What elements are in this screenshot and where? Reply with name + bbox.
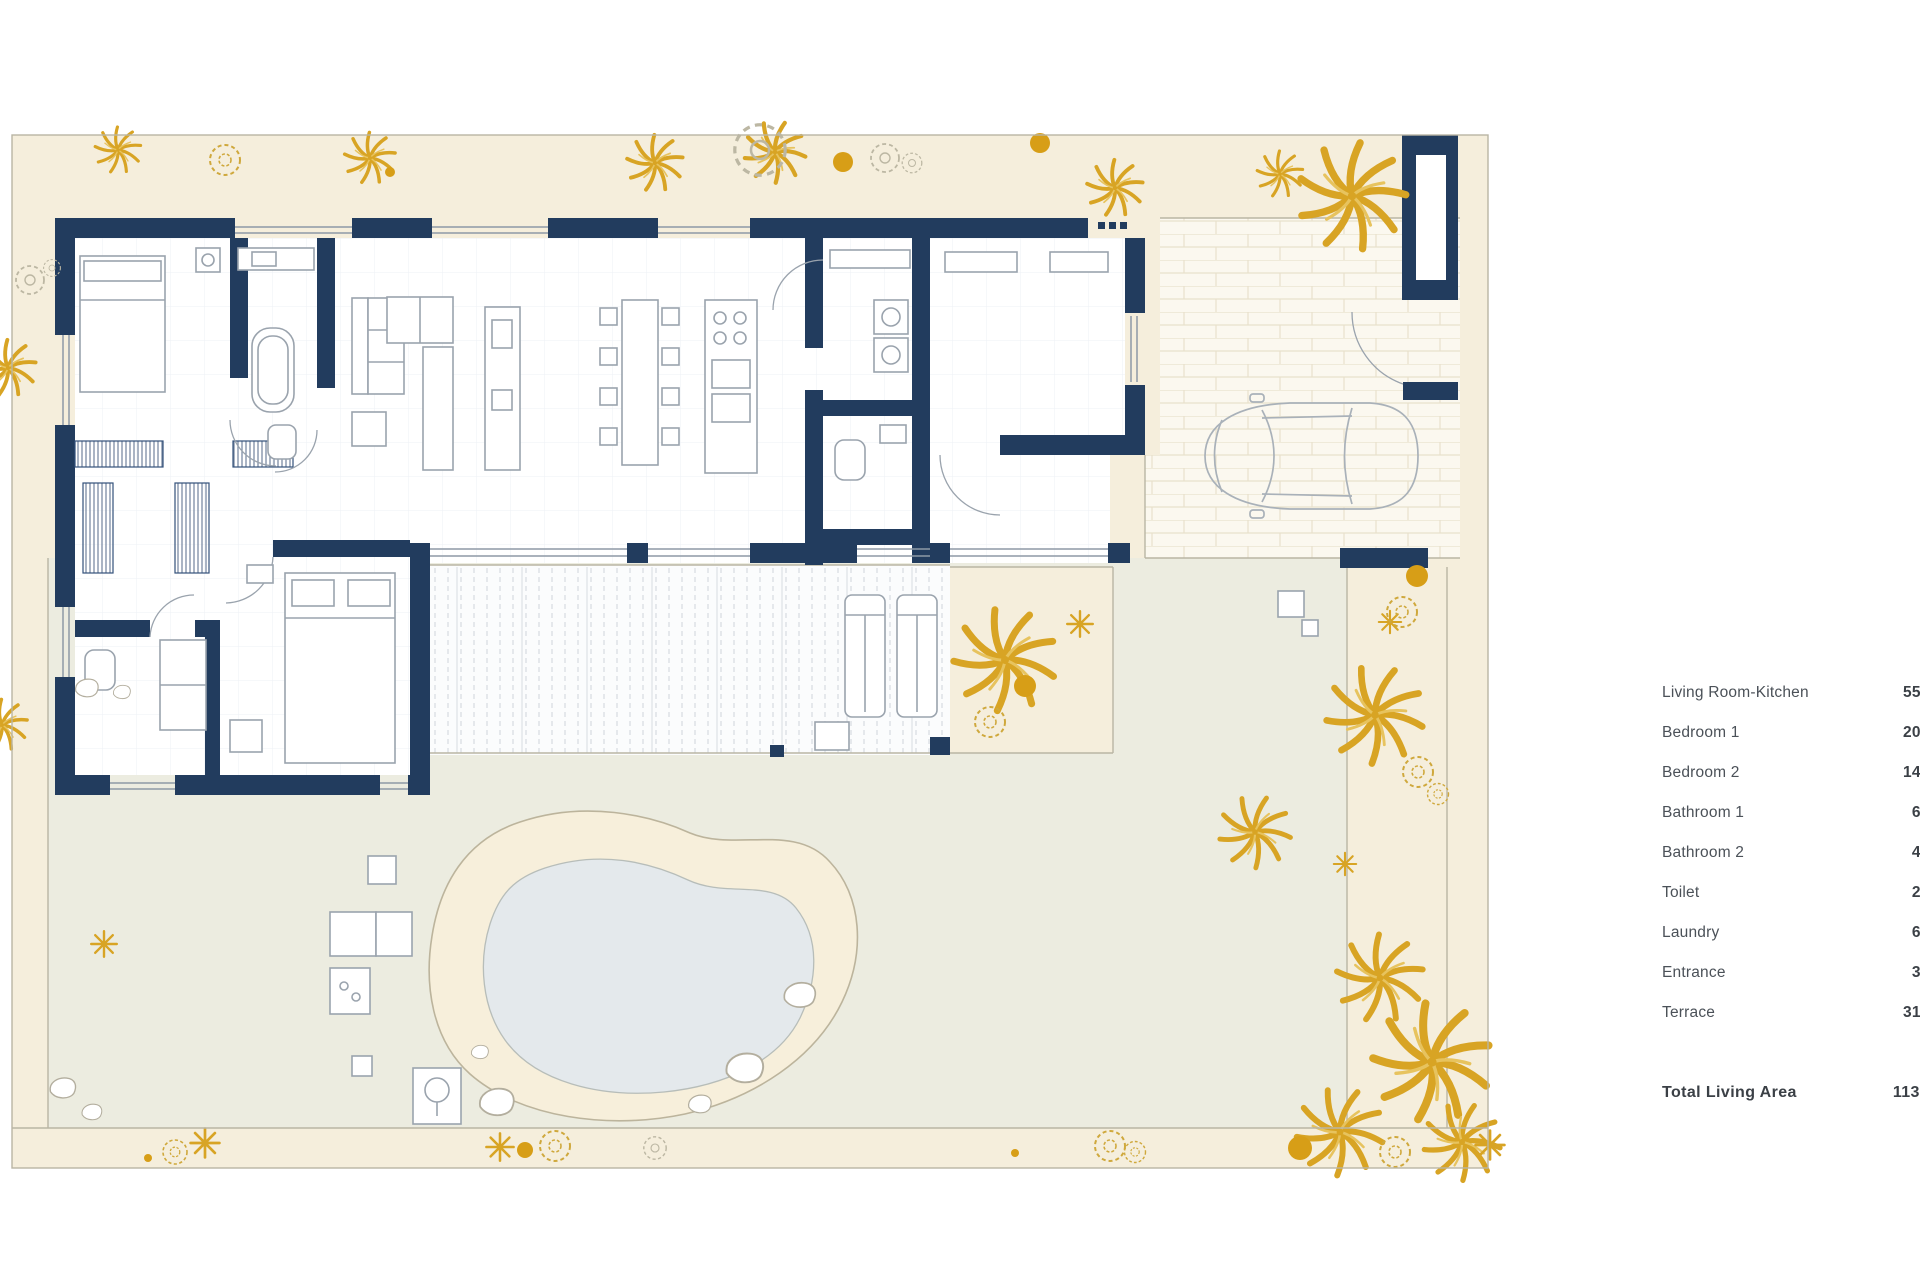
garden-dot-icon: [1030, 133, 1050, 153]
room-label: Bathroom 1: [1662, 804, 1744, 822]
pool-water: [483, 859, 813, 1093]
garden-dot-icon: [1288, 1136, 1312, 1160]
legend-row: Living Room-Kitchen 55,7: [1662, 673, 1920, 713]
stone-icon: [471, 1045, 488, 1058]
legend-row: Bedroom 2 14,7: [1662, 753, 1920, 793]
total-area-value: 113,6: [1893, 1084, 1920, 1102]
garden-dot-icon: [1406, 565, 1428, 587]
room-area-value: 31,9: [1903, 1004, 1920, 1022]
area-legend: Living Room-Kitchen 55,7 Bedroom 1 20,2 …: [1662, 673, 1920, 1113]
stone-icon: [784, 983, 815, 1007]
room-area-value: 14,7: [1903, 764, 1920, 782]
stone-icon: [689, 1095, 712, 1113]
room-label: Laundry: [1662, 924, 1719, 942]
agave-icon: [1476, 1131, 1505, 1160]
legend-row: Terrace 31,9: [1662, 993, 1920, 1033]
legend-row: Bathroom 2 4,6: [1662, 833, 1920, 873]
kitchen-tall-unit: [705, 300, 757, 473]
garden-dot-icon: [1011, 1149, 1019, 1157]
stone-icon: [726, 1054, 763, 1083]
floor-plan-drawing: [0, 0, 1920, 1280]
room-label: Toilet: [1662, 884, 1699, 902]
stone-icon: [113, 685, 130, 698]
room-label: Entrance: [1662, 964, 1726, 982]
stone-icon: [82, 1104, 102, 1119]
room-area-value: 2,2: [1912, 884, 1920, 902]
room-label: Living Room-Kitchen: [1662, 684, 1809, 702]
garden-dot-icon: [1014, 675, 1036, 697]
room-area-value: 4,6: [1912, 844, 1920, 862]
gate-pillar-core: [1416, 155, 1446, 280]
stone-icon: [50, 1078, 75, 1098]
room-area-value: 6,0: [1912, 804, 1920, 822]
room-label: Bedroom 1: [1662, 724, 1740, 742]
garden-dot-icon: [385, 167, 395, 177]
agave-icon: [486, 1133, 513, 1160]
garden-dot-icon: [517, 1142, 533, 1158]
stone-icon: [76, 679, 99, 697]
legend-row: Toilet 2,2: [1662, 873, 1920, 913]
room-area-value: 55,7: [1903, 684, 1920, 702]
room-label: Bedroom 2: [1662, 764, 1740, 782]
room-label: Bathroom 2: [1662, 844, 1744, 862]
floor-plan-page: Living Room-Kitchen 55,7 Bedroom 1 20,2 …: [0, 0, 1920, 1280]
agave-icon: [191, 1129, 220, 1158]
agave-icon: [91, 931, 117, 957]
total-label: Total Living Area: [1662, 1084, 1797, 1102]
room-label: Terrace: [1662, 1004, 1715, 1022]
legend-row: Bathroom 1 6,0: [1662, 793, 1920, 833]
room-area-value: 20,2: [1903, 724, 1920, 742]
agave-icon: [1067, 611, 1093, 637]
room-area-value: 3,0: [1912, 964, 1920, 982]
legend-row: Laundry 6,7: [1662, 913, 1920, 953]
legend-row: Entrance 3,0: [1662, 953, 1920, 993]
legend-total-row: Total Living Area 113,6: [1662, 1073, 1920, 1113]
room-area-value: 6,7: [1912, 924, 1920, 942]
legend-row: Bedroom 1 20,2: [1662, 713, 1920, 753]
garden-dot-icon: [144, 1154, 152, 1162]
garden-dot-icon: [833, 152, 853, 172]
stone-icon: [480, 1089, 514, 1116]
agave-icon: [1334, 853, 1356, 875]
